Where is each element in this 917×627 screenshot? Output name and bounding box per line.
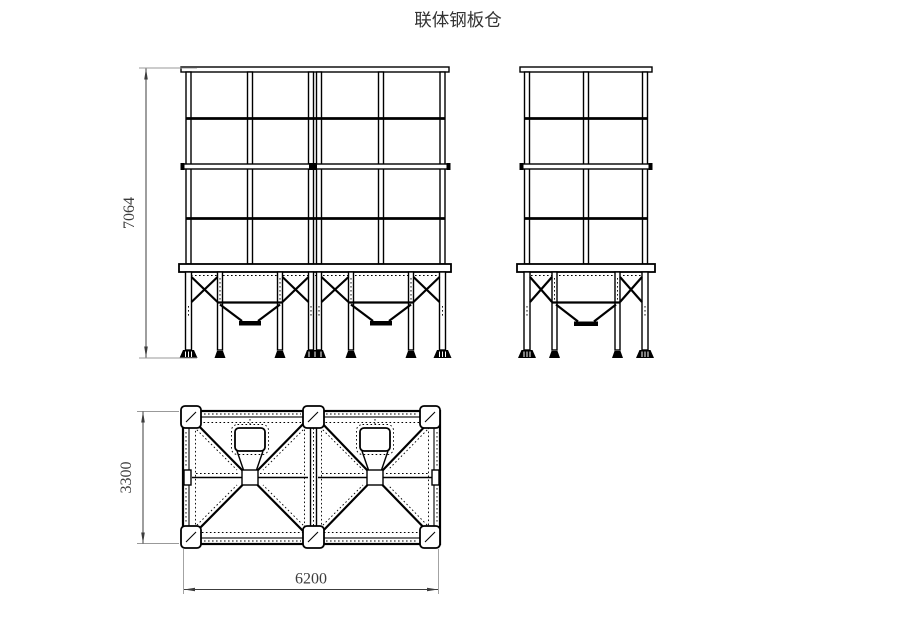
drawing-canvas: 联体钢板仓	[0, 0, 917, 627]
engineering-drawing: 联体钢板仓	[0, 0, 917, 627]
outlet-opening-left	[242, 470, 258, 485]
support-frame-side	[524, 272, 648, 350]
side-elevation-view	[517, 67, 655, 358]
hopper-side	[552, 303, 620, 327]
manhole-right	[360, 428, 390, 451]
hopper-front-right	[349, 303, 414, 326]
outlet-opening-right	[367, 470, 383, 485]
width-dimension: 6200	[184, 549, 439, 594]
base-plates-front	[180, 350, 452, 358]
drawing-title: 联体钢板仓	[414, 10, 502, 30]
depth-dimension-label: 3300	[118, 462, 135, 494]
height-dimension-label: 7064	[121, 197, 138, 229]
silo-grid-front	[179, 67, 451, 276]
plan-bay-right	[318, 419, 432, 536]
base-plates-side	[518, 350, 654, 358]
support-frame-front	[186, 272, 446, 350]
silo-grid-side	[517, 67, 655, 276]
hopper-front-left	[218, 303, 283, 326]
width-dimension-label: 6200	[295, 571, 327, 588]
manhole-left	[235, 428, 265, 451]
plan-bay-left	[192, 419, 308, 536]
plan-view	[181, 406, 440, 548]
front-elevation-view	[179, 67, 452, 358]
depth-dimension: 3300	[118, 412, 179, 544]
